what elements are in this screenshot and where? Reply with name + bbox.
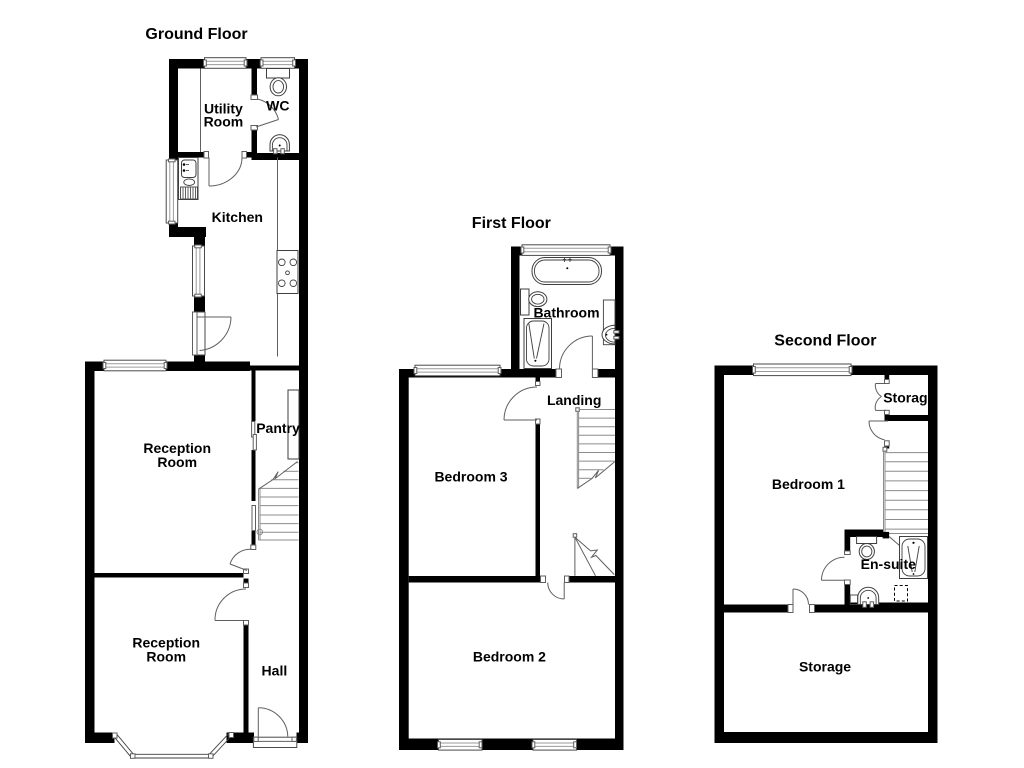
svg-text:First Floor: First Floor — [472, 215, 551, 232]
svg-text:WC: WC — [266, 98, 289, 114]
svg-text:Hall: Hall — [262, 663, 288, 679]
svg-text:Ground Floor: Ground Floor — [145, 26, 247, 43]
svg-text:Second Floor: Second Floor — [774, 333, 876, 350]
svg-text:Landing: Landing — [547, 392, 601, 408]
svg-text:Bathroom: Bathroom — [533, 304, 599, 320]
svg-text:Room: Room — [146, 648, 186, 664]
svg-text:En-suite: En-suite — [861, 556, 916, 572]
svg-text:Room: Room — [204, 114, 244, 130]
svg-text:Bedroom 1: Bedroom 1 — [772, 476, 845, 492]
svg-text:Kitchen: Kitchen — [212, 209, 263, 225]
svg-text:Room: Room — [157, 454, 197, 470]
svg-text:Bedroom 3: Bedroom 3 — [434, 468, 507, 484]
svg-text:Bedroom 2: Bedroom 2 — [473, 649, 546, 665]
svg-text:Storage: Storage — [799, 659, 851, 675]
svg-text:Pantry: Pantry — [256, 420, 300, 436]
svg-text:Storage: Storage — [883, 390, 935, 406]
